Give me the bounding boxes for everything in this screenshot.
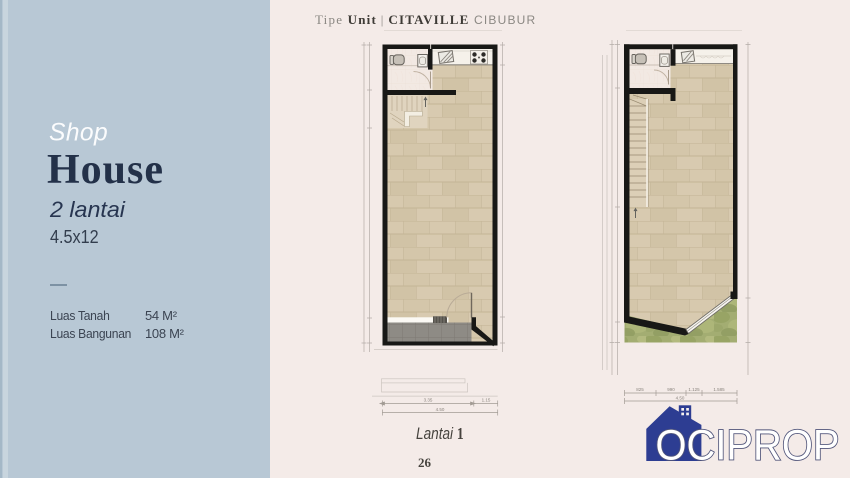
svg-text:4.50: 4.50 (436, 407, 445, 412)
svg-text:1.585: 1.585 (713, 387, 725, 392)
svg-text:4.50: 4.50 (676, 395, 685, 400)
svg-text:1.15: 1.15 (482, 398, 491, 403)
svg-text:1.125: 1.125 (688, 387, 700, 392)
svg-text:3.35: 3.35 (424, 398, 433, 403)
svg-text:825: 825 (636, 387, 644, 392)
svg-text:OCIPROP: OCIPROP (656, 423, 840, 470)
svg-text:990: 990 (667, 387, 675, 392)
